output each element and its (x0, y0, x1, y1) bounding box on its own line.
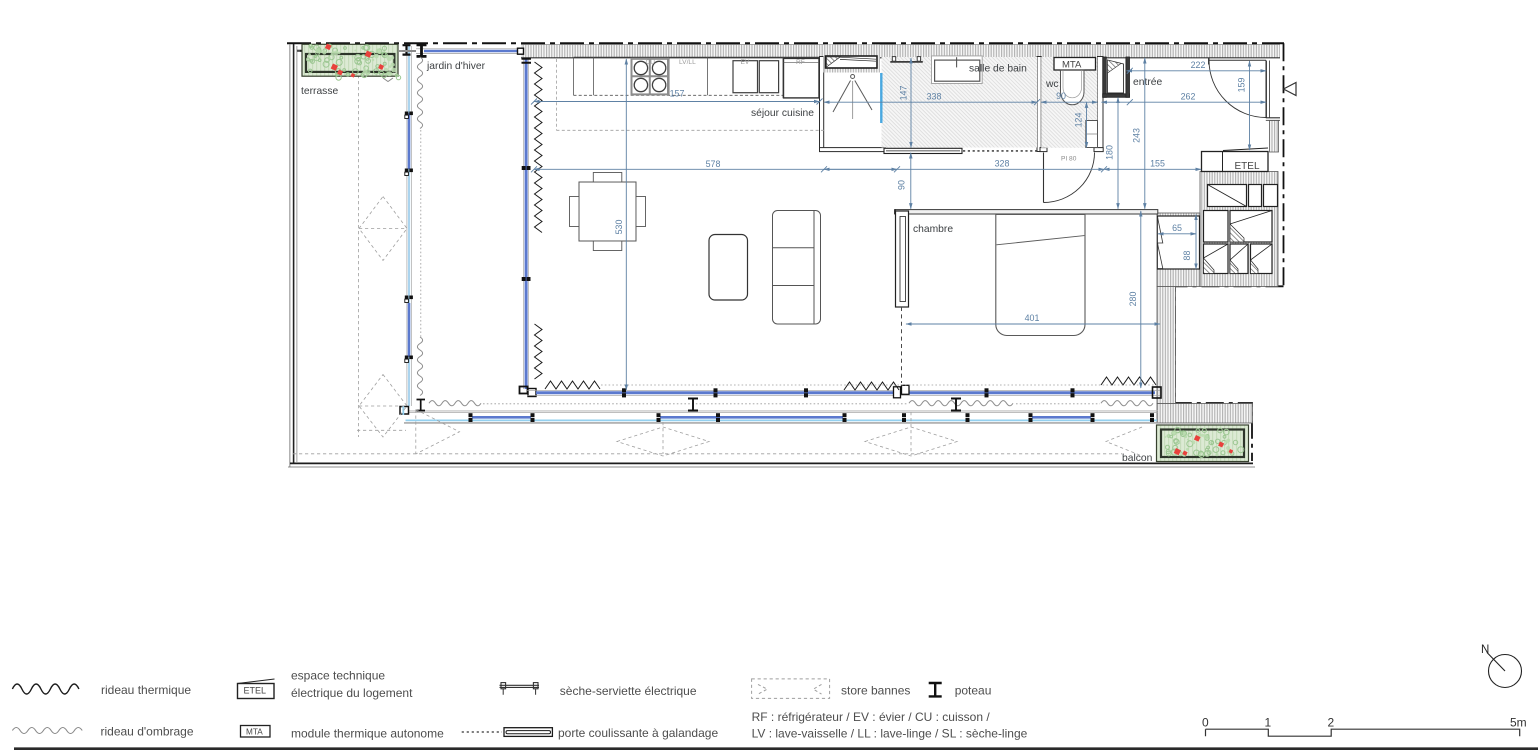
svg-text:PI 80: PI 80 (1061, 156, 1077, 163)
svg-text:wc: wc (1045, 79, 1059, 90)
svg-text:90: 90 (897, 180, 907, 190)
svg-text:store bannes: store bannes (841, 684, 910, 698)
svg-text:578: 578 (706, 159, 721, 169)
svg-text:poteau: poteau (955, 684, 992, 698)
svg-text:MTA: MTA (246, 728, 263, 737)
svg-text:module thermique autonome: module thermique autonome (291, 726, 444, 740)
svg-text:159: 159 (1237, 78, 1247, 93)
svg-text:salle de bain: salle de bain (969, 64, 1027, 75)
svg-text:terrasse: terrasse (301, 86, 338, 97)
svg-text:espace technique: espace technique (291, 669, 385, 683)
svg-text:530: 530 (614, 220, 624, 235)
svg-text:90: 90 (1056, 91, 1066, 101)
svg-text:147: 147 (899, 86, 909, 101)
svg-text:180: 180 (1105, 145, 1115, 160)
svg-text:0: 0 (1202, 716, 1209, 730)
svg-text:338: 338 (927, 92, 942, 102)
svg-text:N: N (1481, 644, 1489, 656)
svg-text:entrée: entrée (1133, 77, 1162, 88)
svg-text:262: 262 (1181, 92, 1196, 102)
svg-text:rideau d'ombrage: rideau d'ombrage (101, 725, 194, 739)
svg-text:CU: CU (646, 59, 656, 66)
svg-text:157: 157 (670, 89, 685, 99)
svg-text:jardin d'hiver: jardin d'hiver (426, 61, 486, 72)
svg-text:5m: 5m (1510, 716, 1527, 730)
svg-text:155: 155 (1150, 159, 1165, 169)
svg-text:65: 65 (1172, 223, 1182, 233)
svg-text:EV: EV (741, 59, 750, 66)
svg-text:328: 328 (995, 159, 1010, 169)
svg-text:243: 243 (1132, 128, 1142, 143)
svg-text:sèche-serviette électrique: sèche-serviette électrique (560, 684, 697, 698)
svg-text:88: 88 (1182, 251, 1192, 261)
svg-text:balcon: balcon (1122, 453, 1153, 464)
svg-text:porte coulissante à galandage: porte coulissante à galandage (558, 726, 718, 740)
svg-text:séjour cuisine: séjour cuisine (751, 108, 814, 119)
svg-text:électrique du logement: électrique du logement (291, 686, 413, 700)
svg-text:401: 401 (1025, 313, 1040, 323)
svg-text:222: 222 (1191, 60, 1206, 70)
svg-text:chambre: chambre (913, 224, 953, 235)
svg-text:2: 2 (1328, 716, 1335, 730)
svg-text:RF: RF (796, 59, 805, 66)
svg-text:1: 1 (1265, 716, 1272, 730)
svg-text:MTA: MTA (1062, 60, 1082, 71)
svg-text:LV : lave-vaisselle / LL : lav: LV : lave-vaisselle / LL : lave-linge / … (752, 727, 1028, 741)
svg-text:rideau thermique: rideau thermique (101, 683, 191, 697)
svg-text:280: 280 (1128, 292, 1138, 307)
svg-text:RF : réfrigérateur / EV : évie: RF : réfrigérateur / EV : évier / CU : c… (752, 710, 991, 724)
svg-text:LV/LL: LV/LL (679, 59, 696, 66)
svg-text:ETEL: ETEL (244, 686, 267, 696)
svg-text:124: 124 (1074, 113, 1084, 128)
svg-text:ETEL: ETEL (1235, 161, 1260, 172)
